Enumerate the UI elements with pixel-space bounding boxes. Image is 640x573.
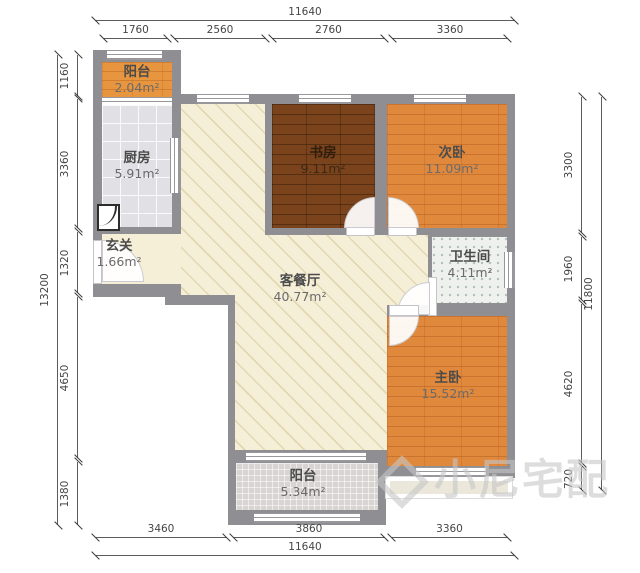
room-label-balcony-bottom: 阳台 5.34m² bbox=[280, 468, 325, 499]
dim-label: 3860 bbox=[296, 523, 323, 535]
room-name: 阳台 bbox=[114, 64, 159, 80]
dim-total-top: 11640 bbox=[95, 20, 515, 21]
room-label-bathroom: 卫生间 4.11m² bbox=[447, 249, 492, 280]
dim-label: 1760 bbox=[122, 24, 149, 36]
dim-segment: 1960 bbox=[581, 237, 582, 300]
dim-label: 13200 bbox=[39, 273, 51, 306]
window bbox=[299, 94, 351, 104]
room-label-bedroom-second: 次卧 11.09m² bbox=[426, 145, 479, 176]
room-name: 书房 bbox=[300, 145, 345, 161]
dim-label: 4620 bbox=[563, 370, 575, 397]
window bbox=[414, 94, 466, 104]
room-name: 厨房 bbox=[114, 150, 159, 166]
window bbox=[504, 252, 515, 288]
door-threshold bbox=[388, 227, 417, 236]
room-area: 5.34m² bbox=[280, 484, 325, 499]
room-name: 客餐厅 bbox=[274, 273, 327, 289]
room-area: 4.11m² bbox=[447, 265, 492, 280]
dim-label: 4650 bbox=[59, 364, 71, 391]
dim-segment: 3460 bbox=[95, 537, 227, 538]
window bbox=[246, 452, 366, 462]
window bbox=[197, 94, 249, 104]
room-name: 主卧 bbox=[422, 370, 475, 386]
floorplan-canvas: 阳台 2.04m² 厨房 5.91m² 玄关 1.66m² 书房 9.11m² … bbox=[0, 0, 640, 573]
window bbox=[170, 138, 181, 193]
dim-segment: 1320 bbox=[77, 232, 78, 293]
dim-label: 1960 bbox=[563, 255, 575, 282]
dim-segment: 720 bbox=[581, 467, 582, 490]
room-label-entry: 玄关 1.66m² bbox=[96, 238, 141, 269]
dim-label: 3360 bbox=[436, 523, 463, 535]
dim-label: 3360 bbox=[59, 150, 71, 177]
dim-segment: 1760 bbox=[103, 38, 168, 39]
room-label-living-dining: 客餐厅 40.77m² bbox=[274, 273, 327, 304]
door-threshold bbox=[389, 305, 419, 316]
window bbox=[254, 513, 360, 523]
dim-segment: 1380 bbox=[77, 462, 78, 525]
dim-label: 2560 bbox=[207, 24, 234, 36]
dim-segment: 3360 bbox=[392, 38, 508, 39]
dim-segment: 4650 bbox=[77, 297, 78, 458]
dim-segment: 1160 bbox=[77, 55, 78, 96]
room-label-bedroom-master: 主卧 15.52m² bbox=[422, 370, 475, 401]
room-name: 次卧 bbox=[426, 145, 479, 161]
window bbox=[416, 467, 486, 477]
dim-label: 720 bbox=[563, 468, 575, 488]
dim-label: 1380 bbox=[59, 480, 71, 507]
dim-total-bottom: 11640 bbox=[95, 555, 515, 556]
room-label-balcony-top: 阳台 2.04m² bbox=[114, 64, 159, 95]
dim-label: 3300 bbox=[563, 152, 575, 179]
room-area: 15.52m² bbox=[422, 386, 475, 401]
dim-segment: 3360 bbox=[77, 99, 78, 228]
master-ledge bbox=[386, 477, 512, 498]
room-area: 40.77m² bbox=[274, 289, 327, 304]
dim-label: 1160 bbox=[59, 62, 71, 89]
dim-segment: 2560 bbox=[174, 38, 266, 39]
room-name: 卫生间 bbox=[447, 249, 492, 265]
dim-segment: 3300 bbox=[581, 97, 582, 233]
room-area: 2.04m² bbox=[114, 80, 159, 95]
window bbox=[102, 97, 172, 105]
window bbox=[107, 50, 162, 60]
dim-label: 2760 bbox=[315, 24, 342, 36]
dim-segment: 3860 bbox=[233, 537, 385, 538]
room-name: 阳台 bbox=[280, 468, 325, 484]
dim-label: 11640 bbox=[288, 541, 321, 553]
room-label-kitchen: 厨房 5.91m² bbox=[114, 150, 159, 181]
room-name: 玄关 bbox=[96, 238, 141, 254]
room-area: 5.91m² bbox=[114, 166, 159, 181]
room-area: 1.66m² bbox=[96, 254, 141, 269]
dim-total-left: 13200 bbox=[57, 55, 58, 525]
dim-label: 1320 bbox=[59, 249, 71, 276]
dim-label: 3460 bbox=[148, 523, 175, 535]
dim-label: 3360 bbox=[437, 24, 464, 36]
dim-segment: 2760 bbox=[272, 38, 385, 39]
dim-total-right: 11800 bbox=[601, 97, 602, 490]
kitchen-fixture-icon bbox=[97, 204, 120, 231]
room-area: 11.09m² bbox=[426, 161, 479, 176]
room-label-study: 书房 9.11m² bbox=[300, 145, 345, 176]
room-area: 9.11m² bbox=[300, 161, 345, 176]
door-threshold bbox=[346, 227, 375, 236]
dim-segment: 3360 bbox=[391, 537, 508, 538]
dim-label: 11640 bbox=[288, 6, 321, 18]
dim-segment: 4620 bbox=[581, 304, 582, 463]
